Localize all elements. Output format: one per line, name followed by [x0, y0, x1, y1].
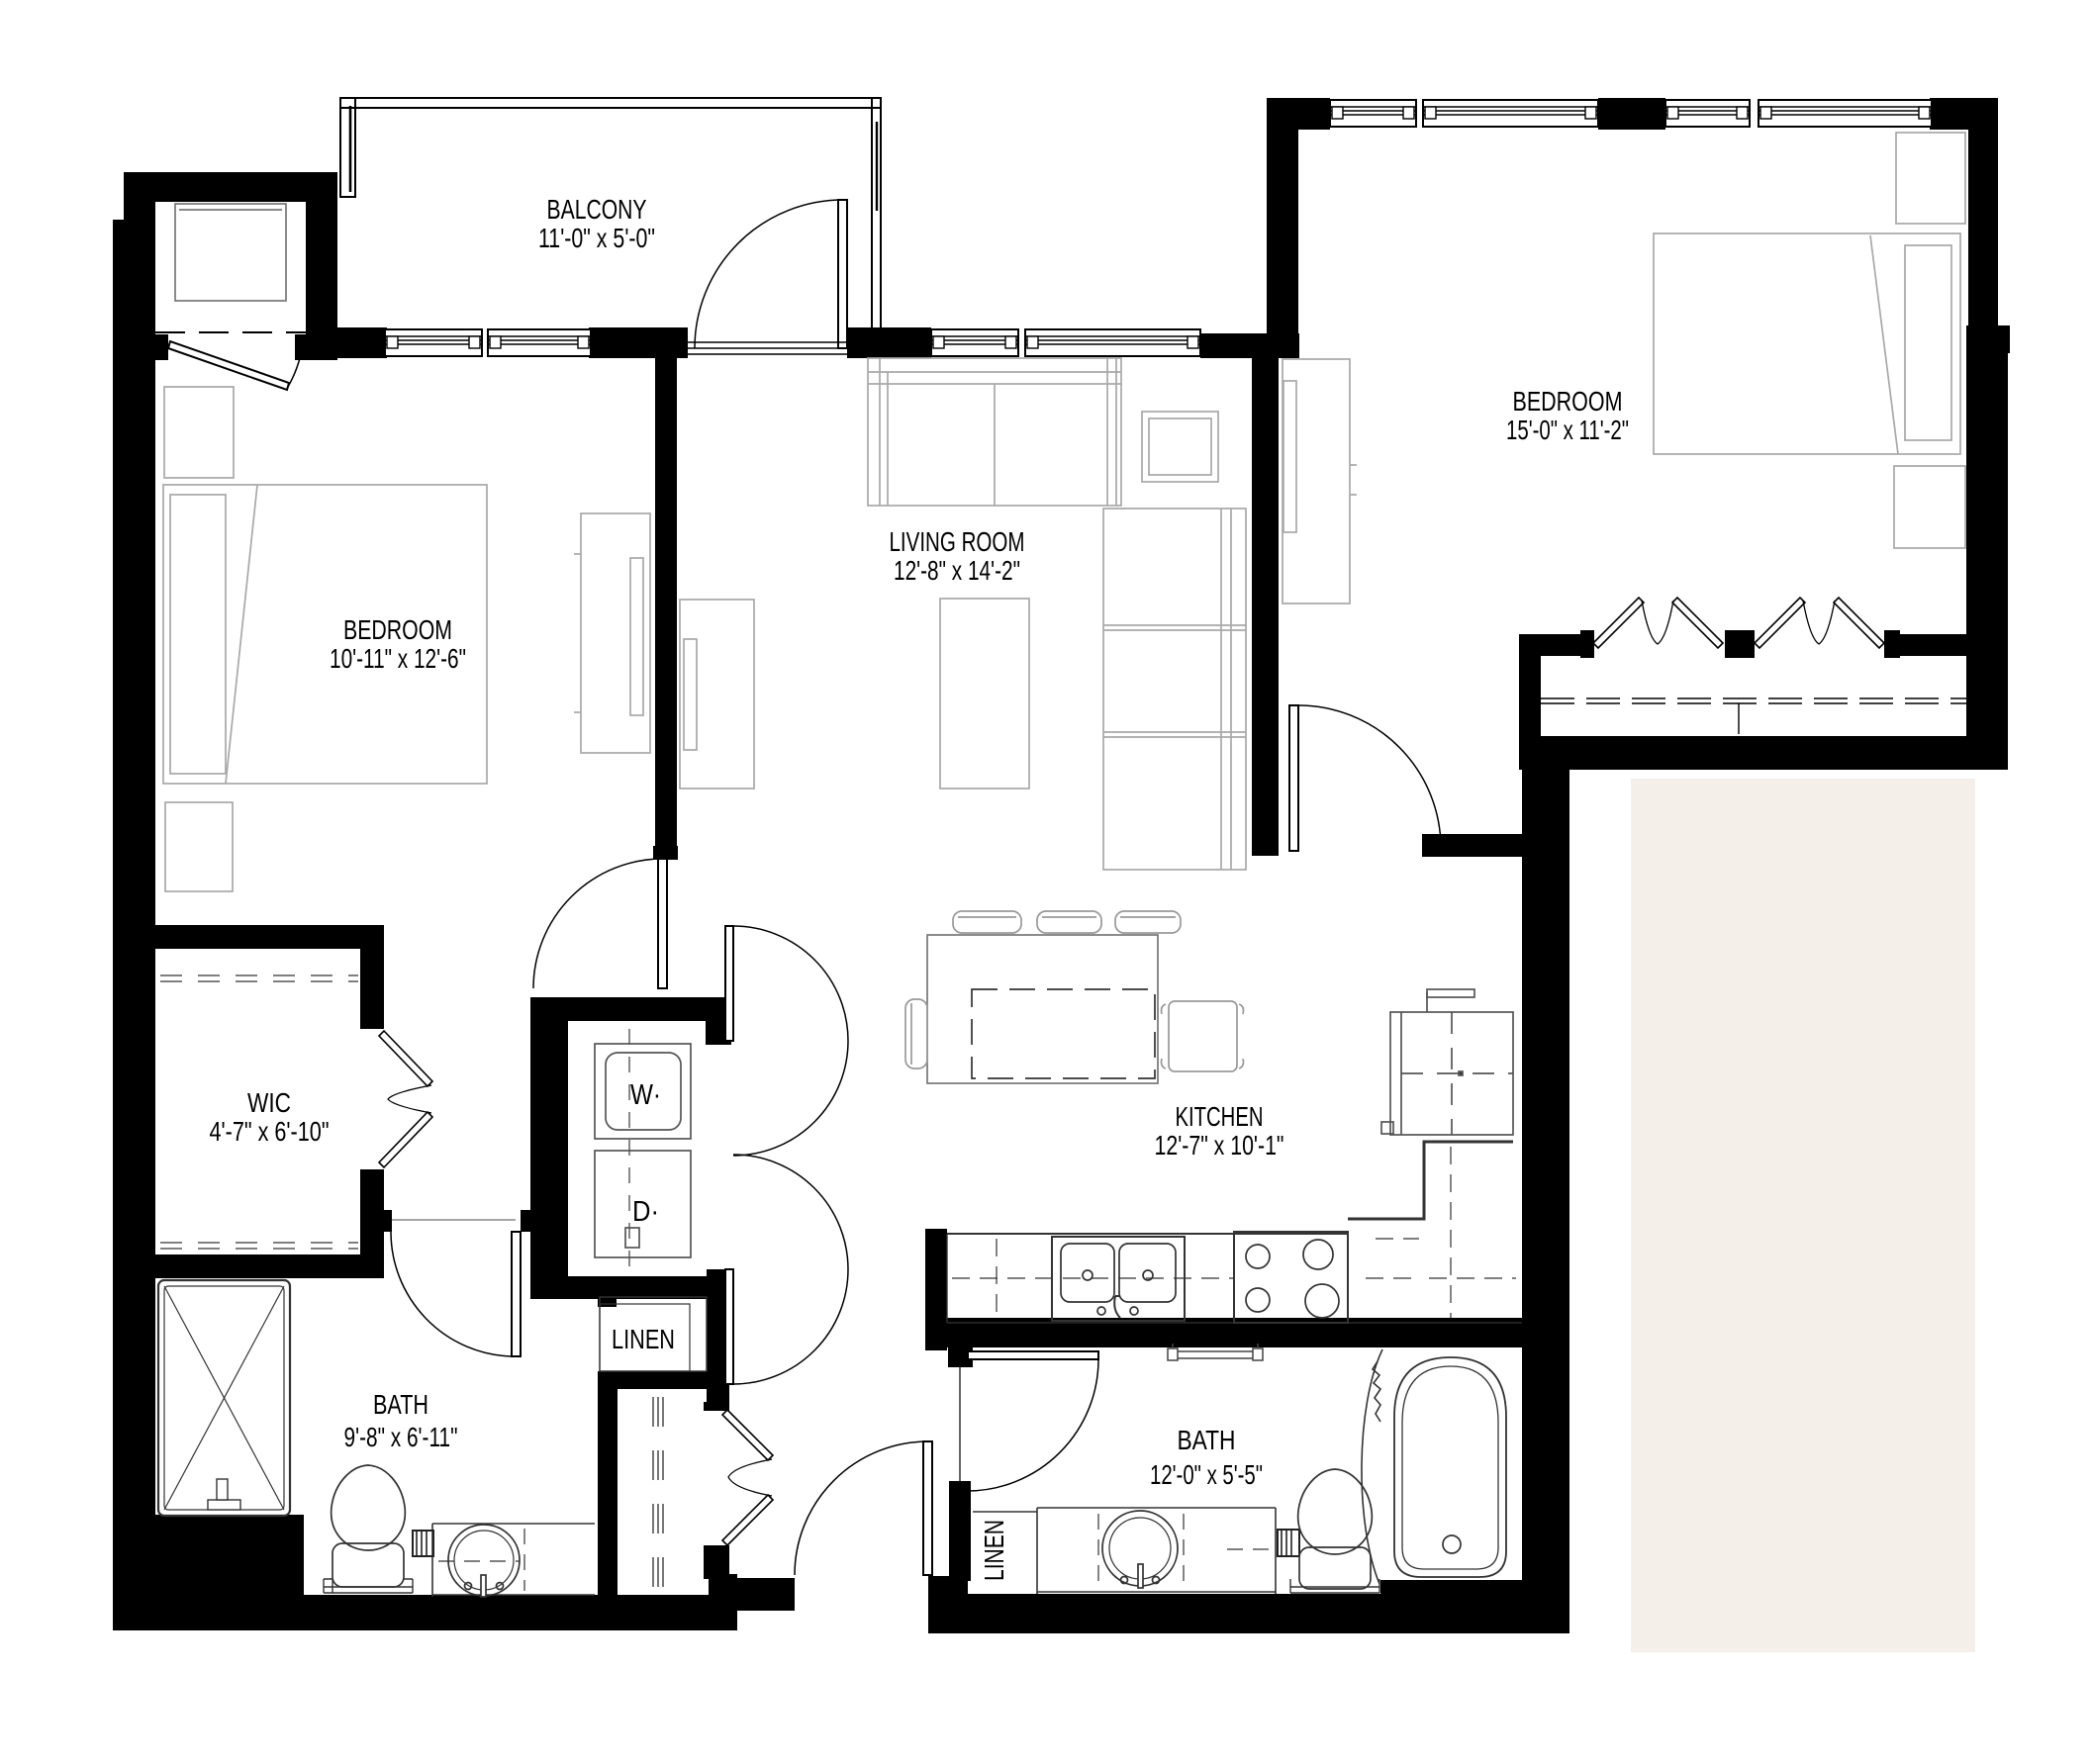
svg-text:11'-0" x 5'-0": 11'-0" x 5'-0"	[538, 223, 655, 253]
svg-text:BATH: BATH	[373, 1389, 428, 1420]
svg-text:WIC: WIC	[247, 1087, 291, 1118]
svg-text:LINEN: LINEN	[979, 1520, 1009, 1581]
svg-text:12'-8" x 14'-2": 12'-8" x 14'-2"	[894, 555, 1020, 586]
svg-text:12'-7" x 10'-1": 12'-7" x 10'-1"	[1155, 1130, 1284, 1161]
svg-text:W·: W·	[630, 1079, 661, 1111]
svg-text:BEDROOM: BEDROOM	[343, 614, 452, 645]
svg-text:BATH: BATH	[1178, 1425, 1236, 1455]
svg-text:LIVING ROOM: LIVING ROOM	[890, 526, 1025, 557]
svg-text:D·: D·	[632, 1196, 659, 1228]
svg-text:10'-11" x 12'-6": 10'-11" x 12'-6"	[330, 643, 466, 674]
svg-text:4'-7" x 6'-10": 4'-7" x 6'-10"	[210, 1116, 330, 1147]
svg-text:LINEN: LINEN	[612, 1324, 675, 1354]
svg-text:9'-8" x 6'-11": 9'-8" x 6'-11"	[344, 1422, 458, 1452]
svg-text:BEDROOM: BEDROOM	[1513, 386, 1623, 417]
svg-text:KITCHEN: KITCHEN	[1176, 1101, 1264, 1132]
svg-text:12'-0" x 5'-5": 12'-0" x 5'-5"	[1150, 1459, 1263, 1490]
svg-text:BALCONY: BALCONY	[547, 194, 647, 225]
svg-text:15'-0" x 11'-2": 15'-0" x 11'-2"	[1506, 415, 1629, 445]
